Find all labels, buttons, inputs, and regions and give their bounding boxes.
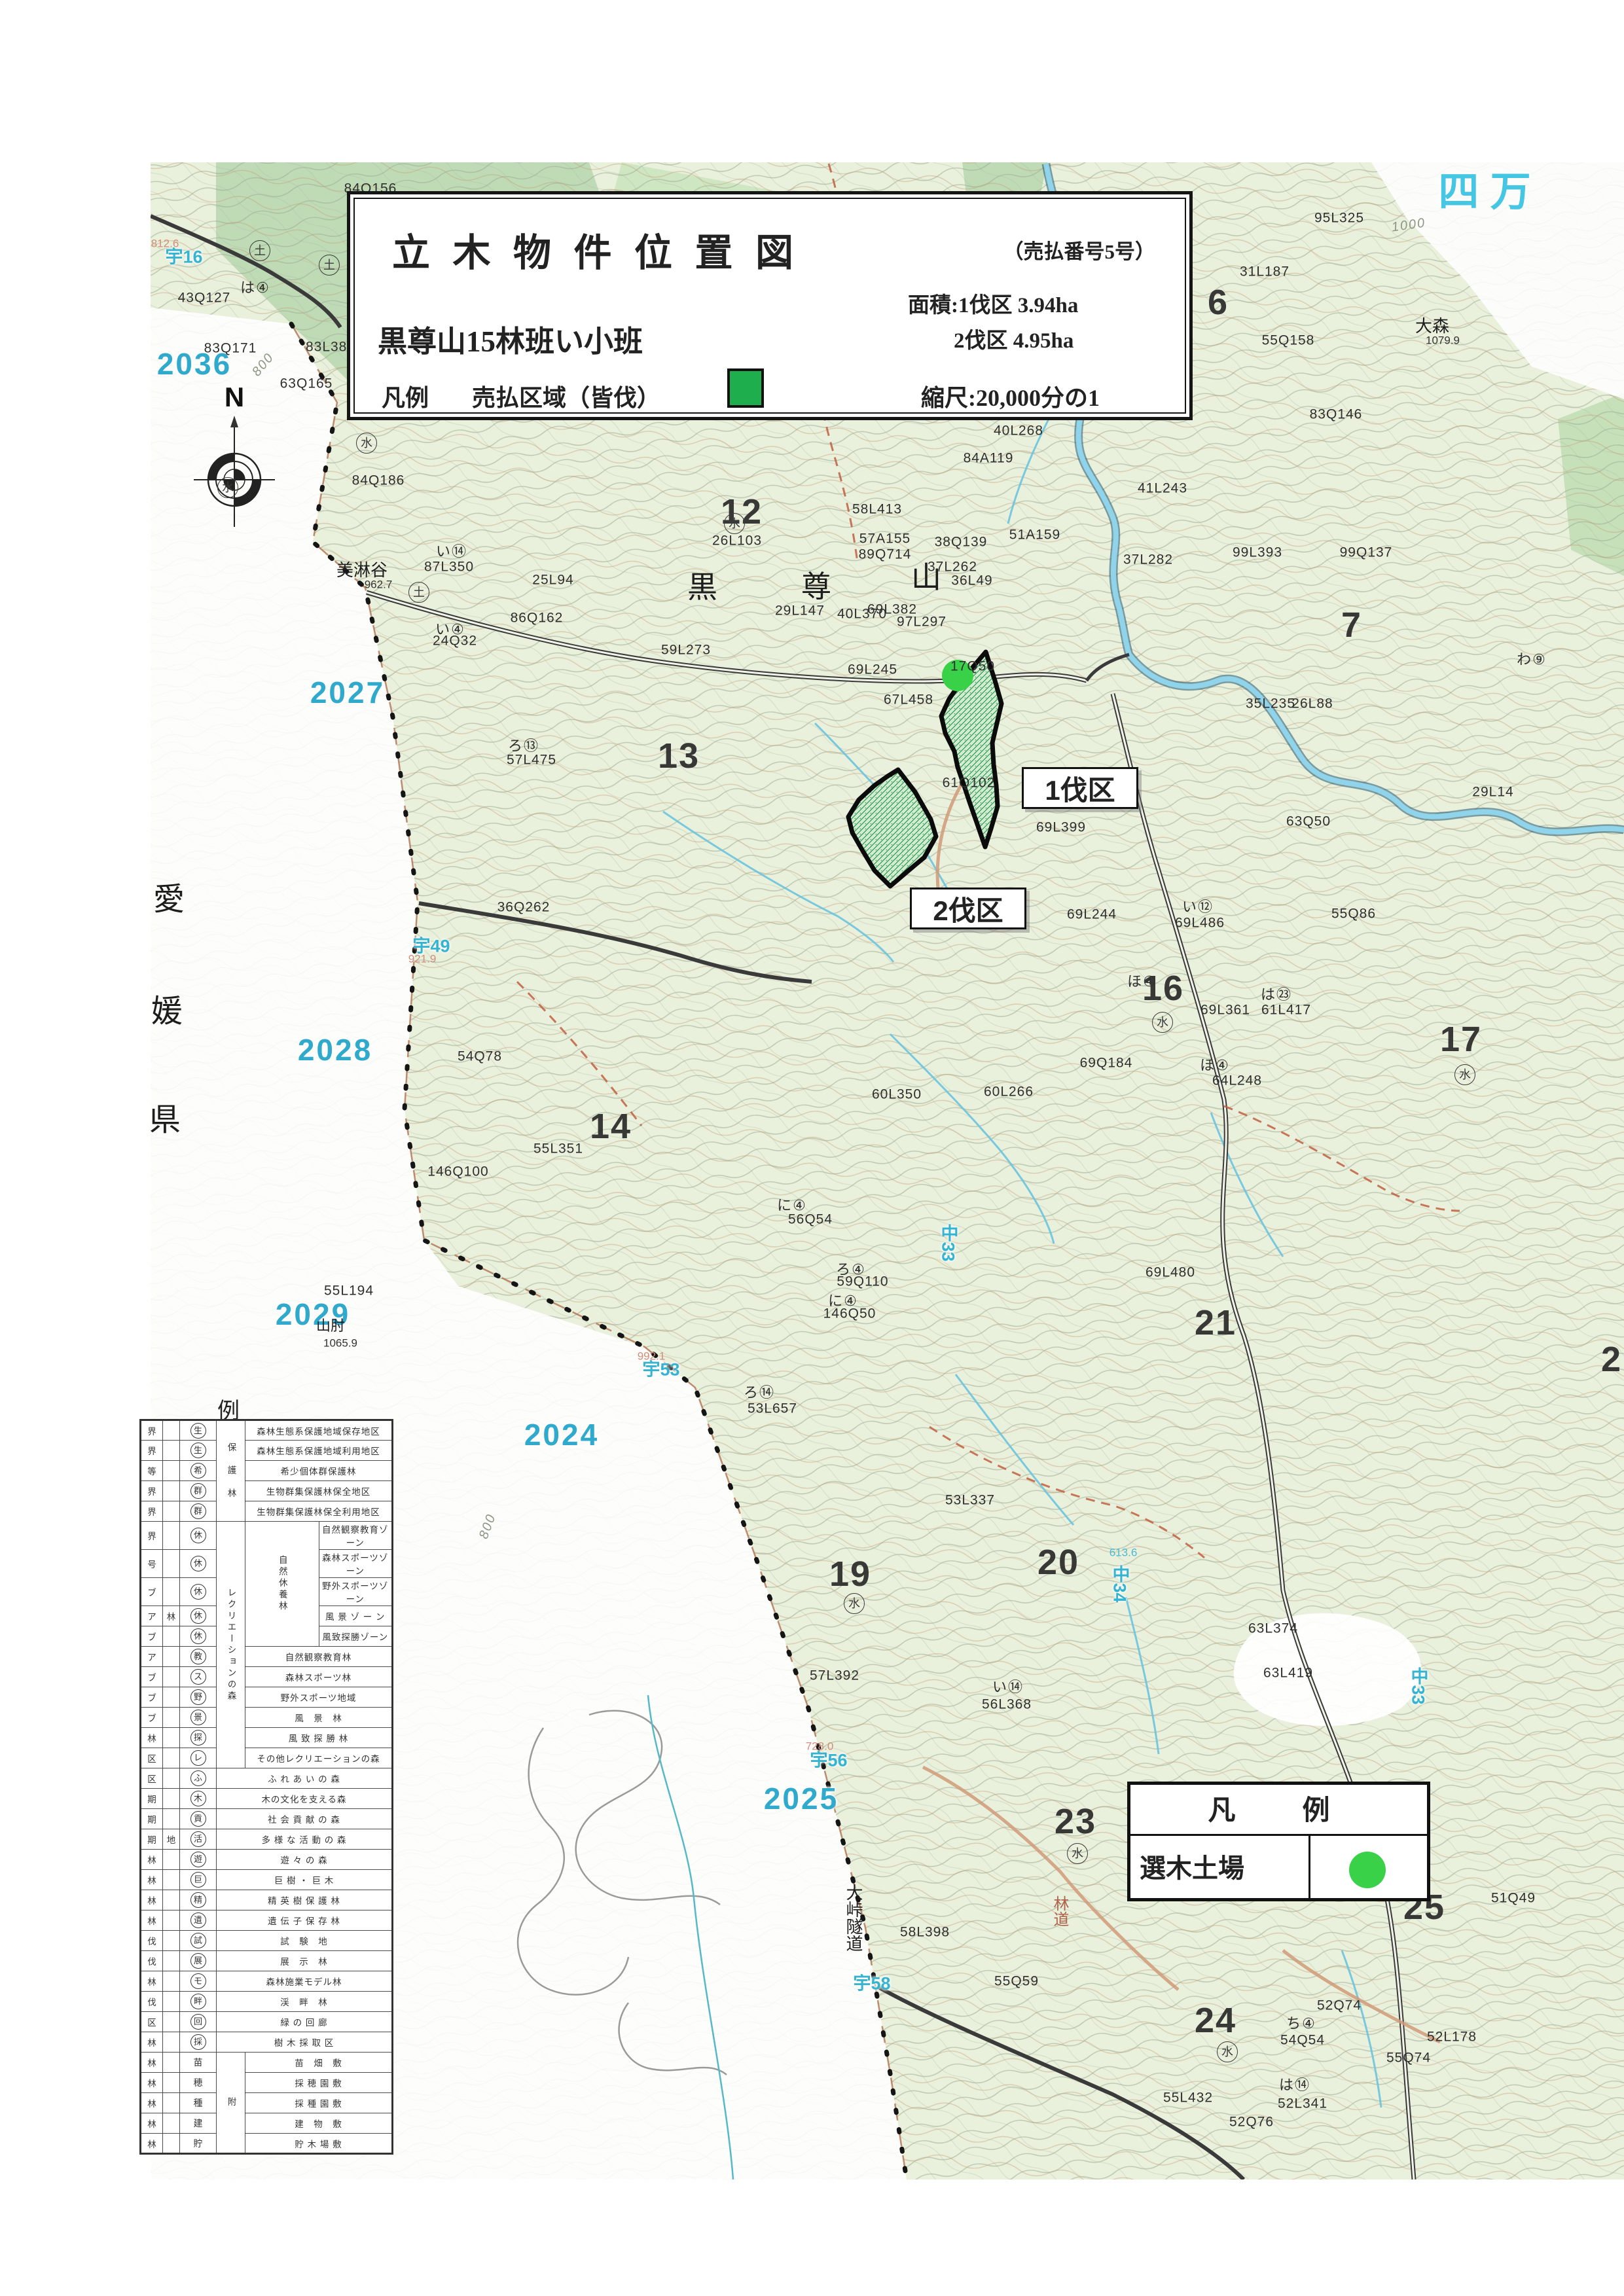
legend-row: 界生保 護 林森林生態系保護地域保存地区 (141, 1420, 393, 1441)
legend-cell-sym: 生 (180, 1441, 217, 1461)
legend-cell-strip: 林 (141, 2053, 163, 2073)
legend-cell-group (163, 1550, 180, 1578)
legend-row: 界群生物群集保護林保全地区 (141, 1481, 393, 1501)
area-line-2: 2伐区 4.95ha (954, 323, 1074, 354)
legend-cell-strip: ブ (141, 1687, 163, 1708)
legend-row: 等希希少個体群保護林 (141, 1461, 393, 1481)
legend-cell-strip: 林 (141, 1971, 163, 1992)
legend-cell-sym: 貢 (180, 1809, 217, 1829)
legend-cell-strip: 伐 (141, 1951, 163, 1971)
legend-circle-symbol: 休 (190, 1556, 206, 1571)
legend-cell-group (163, 1501, 180, 1522)
legend-cell-sym: 休 (180, 1606, 217, 1626)
page-title: 立 木 物 件 位 置 図 (392, 222, 800, 277)
legend-cell-group (163, 1931, 180, 1951)
legend-cell-group (163, 2053, 180, 2073)
legend-cell-name: 精 英 樹 保 護 林 (217, 1890, 393, 1910)
legend-cell-sym: レ (180, 1748, 217, 1768)
corner-legend-header: 凡 例 (1130, 1785, 1427, 1836)
legend-row: 期貢社 会 貢 献 の 森 (141, 1809, 393, 1829)
legend-cell-strip: 界 (141, 1420, 163, 1441)
legend-plain-symbol: 種 (194, 2096, 203, 2109)
corner-legend-box: 凡 例 選木土場 (1127, 1782, 1430, 1901)
legend-cell-group (163, 1971, 180, 1992)
legend-cell-group (163, 1687, 180, 1708)
legend-cell-strip: 林 (141, 1870, 163, 1890)
legend-cell-name: 採 種 園 敷 (245, 2093, 393, 2113)
legend-cell-group: 林 (163, 1606, 180, 1626)
legend-cell-name: 自然観察教育ゾーン (319, 1522, 393, 1550)
legend-item-label: 売払区域（皆伐） (472, 379, 660, 413)
legend-cell-sym: 休 (180, 1550, 217, 1578)
legend-circle-symbol: 畔 (190, 1994, 206, 2009)
legend-cell-strip: 林 (141, 2093, 163, 2113)
legend-cell-group (163, 2032, 180, 2053)
legend-cell-cat: 附 (217, 2053, 245, 2154)
legend-cell-group: 地 (163, 1829, 180, 1850)
legend-cell-strip: 林 (141, 1850, 163, 1870)
legend-row: 界生森林生態系保護地域利用地区 (141, 1441, 393, 1461)
legend-circle-symbol: 遺 (190, 1912, 206, 1928)
legend-cell-group (163, 1481, 180, 1501)
legend-cell-strip: 区 (141, 1768, 163, 1789)
cut-area-1-callout: 1伐区 (1022, 767, 1138, 809)
nonforest-pocket (1234, 1613, 1421, 1726)
legend-cell-sym: 休 (180, 1626, 217, 1647)
legend-cell-name: 渓 畔 林 (217, 1992, 393, 2012)
legend-row: 林建建 物 敷 (141, 2113, 393, 2134)
legend-cell-name: 展 示 林 (217, 1951, 393, 1971)
legend-cell-sym: 精 (180, 1890, 217, 1910)
legend-cell-name: ふ れ あ い の 森 (217, 1768, 393, 1789)
legend-cell-name: 森林生態系保護地域保存地区 (245, 1420, 393, 1441)
legend-circle-symbol: 群 (190, 1503, 206, 1519)
legend-row: 区回緑 の 回 廊 (141, 2012, 393, 2032)
legend-plain-symbol: 苗 (194, 2056, 203, 2069)
legend-circle-symbol: 遊 (190, 1852, 206, 1867)
legend-cell-name: 希少個体群保護林 (245, 1461, 393, 1481)
legend-cell-sym: 生 (180, 1420, 217, 1441)
sale-number: （売払番号5号） (1003, 235, 1156, 264)
legend-cell-strip: 界 (141, 1481, 163, 1501)
legend-cell-group (163, 1626, 180, 1647)
legend-cell-sym: 遺 (180, 1910, 217, 1931)
legend-cell-name: 苗 畑 敷 (245, 2053, 393, 2073)
legend-cell-group (163, 1992, 180, 2012)
legend-cell-group (163, 1461, 180, 1481)
legend-circle-symbol: ス (190, 1669, 206, 1685)
legend-cell-name: 建 物 敷 (245, 2113, 393, 2134)
area-line-1: 面積:1伐区 3.94ha (908, 287, 1078, 319)
legend-cell-sym: 野 (180, 1687, 217, 1708)
legend-cell-strip: 林 (141, 1890, 163, 1910)
legend-cell-sym: 巨 (180, 1870, 217, 1890)
legend-cell-name: 樹 木 採 取 区 (217, 2032, 393, 2053)
legend-cell-name: 風 景 林 (245, 1708, 393, 1728)
legend-row: 区レその他レクリエーションの森 (141, 1748, 393, 1768)
legend-label: 凡例 (382, 379, 429, 413)
legend-cell-sym: 遊 (180, 1850, 217, 1870)
legend-row: 林精精 英 樹 保 護 林 (141, 1890, 393, 1910)
legend-cell-sym: 貯 (180, 2134, 217, 2154)
legend-row: 林探風 致 探 勝 林 (141, 1728, 393, 1748)
legend-cell-sym: 教 (180, 1647, 217, 1667)
legend-cell-group (163, 1870, 180, 1890)
legend-row: 伐試試 験 地 (141, 1931, 393, 1951)
legend-row: ブ野野外スポーツ地域 (141, 1687, 393, 1708)
legend-cell-cat: 保 護 林 (217, 1420, 245, 1522)
legend-circle-symbol: ふ (190, 1770, 206, 1786)
legend-cell-name: 森林生態系保護地域利用地区 (245, 1441, 393, 1461)
legend-row: 林貯貯 木 場 敷 (141, 2134, 393, 2154)
legend-cell-name: 自然観察教育林 (245, 1647, 393, 1667)
legend-circle-symbol: 休 (190, 1628, 206, 1644)
legend-cell-name: 野外スポーツ地域 (245, 1687, 393, 1708)
legend-row: 林種採 種 園 敷 (141, 2093, 393, 2113)
legend-cell-strip: ア (141, 1606, 163, 1626)
legend-cell-sym: 畔 (180, 1992, 217, 2012)
legend-plain-symbol: 建 (194, 2117, 203, 2130)
legend-cell-strip: 伐 (141, 1931, 163, 1951)
legend-row: 林採樹 木 採 取 区 (141, 2032, 393, 2053)
legend-cell-strip: 界 (141, 1501, 163, 1522)
legend-plain-symbol: 貯 (194, 2137, 203, 2150)
legend-cell-strip: 号 (141, 1550, 163, 1578)
legend-circle-symbol: 休 (190, 1584, 206, 1600)
legend-row: 林遺遺 伝 子 保 存 林 (141, 1910, 393, 1931)
legend-cell-strip: 区 (141, 1748, 163, 1768)
stand-name-subtitle: 黒尊山15林班い小班 (378, 317, 643, 360)
legend-cell-name: 森林スポーツゾーン (319, 1550, 393, 1578)
legend-cell-sym: 木 (180, 1789, 217, 1809)
legend-row: 界休レクリエーションの森自然休養林自然観察教育ゾーン (141, 1522, 393, 1550)
legend-cell-strip: 伐 (141, 1992, 163, 2012)
legend-cell-group (163, 1420, 180, 1441)
legend-circle-symbol: レ (190, 1750, 206, 1766)
legend-cell-name: 巨 樹 ・ 巨 木 (217, 1870, 393, 1890)
legend-row: 期地活多 様 な 活 動 の 森 (141, 1829, 393, 1850)
legend-cell-group (163, 1850, 180, 1870)
legend-row: ブ景風 景 林 (141, 1708, 393, 1728)
legend-cell-sym: 採 (180, 2032, 217, 2053)
legend-cell-strip: 期 (141, 1789, 163, 1809)
legend-cell-group (163, 1708, 180, 1728)
legend-cell-sym: 活 (180, 1829, 217, 1850)
legend-cell-name: 採 穂 園 敷 (245, 2073, 393, 2093)
legend-cell-group (163, 2113, 180, 2134)
legend-circle-symbol: 群 (190, 1483, 206, 1499)
legend-cell-name: 木の文化を支える森 (217, 1789, 393, 1809)
legend-cell-sym: 種 (180, 2093, 217, 2113)
legend-circle-symbol: 活 (190, 1831, 206, 1847)
legend-cell-sym: 希 (180, 1461, 217, 1481)
legend-circle-symbol: 休 (190, 1608, 206, 1624)
legend-circle-symbol: 探 (190, 1730, 206, 1746)
legend-cell-strip: 林 (141, 1728, 163, 1748)
legend-cell-group (163, 1647, 180, 1667)
legend-row: 界群生物群集保護林保全利用地区 (141, 1501, 393, 1522)
legend-circle-symbol: 希 (190, 1463, 206, 1479)
legend-cell-strip: 区 (141, 2012, 163, 2032)
legend-cell-name: 遺 伝 子 保 存 林 (217, 1910, 393, 1931)
legend-cell-name: 貯 木 場 敷 (245, 2134, 393, 2154)
legend-cell-group (163, 1667, 180, 1687)
legend-circle-symbol: 木 (190, 1791, 206, 1806)
legend-row: 伐展展 示 林 (141, 1951, 393, 1971)
legend-cell-sym: 展 (180, 1951, 217, 1971)
legend-cell-strip: ブ (141, 1708, 163, 1728)
legend-cell-strip: 林 (141, 2032, 163, 2053)
legend-cell-strip: 林 (141, 2073, 163, 2093)
legend-cell-sym: ス (180, 1667, 217, 1687)
legend-circle-symbol: 生 (190, 1423, 206, 1439)
legend-cell-group (163, 2073, 180, 2093)
legend-cell-strip: ブ (141, 1578, 163, 1606)
legend-cell-strip: 界 (141, 1441, 163, 1461)
legend-row: 林穂採 穂 園 敷 (141, 2073, 393, 2093)
legend-cell-strip: 期 (141, 1829, 163, 1850)
legend-cell-sym: 探 (180, 1728, 217, 1748)
timber-yard-marker (942, 660, 973, 691)
legend-cell-group (163, 2012, 180, 2032)
legend-cell-group (163, 1768, 180, 1789)
legend-circle-symbol: 生 (190, 1443, 206, 1458)
legend-cell-group (163, 1951, 180, 1971)
legend-row: 林巨巨 樹 ・ 巨 木 (141, 1870, 393, 1890)
legend-cell-cat: レクリエーションの森 (217, 1522, 245, 1768)
legend-cell-group (163, 1748, 180, 1768)
legend-cell-name: 風 景 ゾ ー ン (319, 1606, 393, 1626)
legend-cell-name: 風 致 探 勝 林 (245, 1728, 393, 1748)
legend-circle-symbol: 試 (190, 1933, 206, 1948)
legend-cell-group (163, 2093, 180, 2113)
legend-cell-sym: 試 (180, 1931, 217, 1951)
timber-yard-dot (1349, 1852, 1386, 1888)
legend-cell-group (163, 2134, 180, 2154)
legend-cell-sym: 休 (180, 1578, 217, 1606)
legend-cell-sym: ふ (180, 1768, 217, 1789)
legend-cell-strip: 林 (141, 1910, 163, 1931)
timber-yard-label: 選木土場 (1140, 1845, 1244, 1892)
corner-legend-divider (1308, 1836, 1310, 1898)
legend-cell-group (163, 1578, 180, 1606)
legend-cell-strip: 期 (141, 1809, 163, 1829)
scale-label: 縮尺:20,000分の1 (921, 379, 1100, 413)
legend-cell-group (163, 1728, 180, 1748)
legend-cell-group (163, 1809, 180, 1829)
legend-cell-name: 社 会 貢 献 の 森 (217, 1809, 393, 1829)
legend-circle-symbol: 景 (190, 1710, 206, 1725)
legend-circle-symbol: 休 (190, 1528, 206, 1543)
legend-circle-symbol: 精 (190, 1892, 206, 1908)
legend-table: 界生保 護 林森林生態系保護地域保存地区界生森林生態系保護地域利用地区等希希少個… (139, 1419, 393, 2155)
legend-cell-name: 風致探勝ゾーン (319, 1626, 393, 1647)
legend-row: ブス森林スポーツ林 (141, 1667, 393, 1687)
legend-cell-strip: 林 (141, 2113, 163, 2134)
legend-row: 林モ森林施業モデル林 (141, 1971, 393, 1992)
legend-row: ア教自然観察教育林 (141, 1647, 393, 1667)
legend-cell-strip: 等 (141, 1461, 163, 1481)
legend-cell-sym: 群 (180, 1481, 217, 1501)
legend-circle-symbol: 回 (190, 2014, 206, 2030)
legend-cell-sym: 休 (180, 1522, 217, 1550)
legend-cell-name: 緑 の 回 廊 (217, 2012, 393, 2032)
legend-cell-sym: 穂 (180, 2073, 217, 2093)
legend-cell-sym: 建 (180, 2113, 217, 2134)
legend-cell-group (163, 1522, 180, 1550)
legend-cell-name: その他レクリエーションの森 (245, 1748, 393, 1768)
title-box: 立 木 物 件 位 置 図 （売払番号5号） 黒尊山15林班い小班 面積:1伐区… (347, 191, 1193, 420)
sale-area-swatch (727, 368, 764, 408)
legend-plain-symbol: 穂 (194, 2076, 203, 2089)
legend-circle-symbol: 貢 (190, 1811, 206, 1827)
legend-row: 伐畔渓 畔 林 (141, 1992, 393, 2012)
legend-row: 林苗附苗 畑 敷 (141, 2053, 393, 2073)
legend-cell-group (163, 1910, 180, 1931)
legend-cell-name: 森林スポーツ林 (245, 1667, 393, 1687)
legend-cell-sym: 景 (180, 1708, 217, 1728)
legend-cell-strip: ブ (141, 1667, 163, 1687)
legend-cell-sym: 群 (180, 1501, 217, 1522)
legend-circle-symbol: モ (190, 1973, 206, 1989)
legend-cell-group (163, 1890, 180, 1910)
legend-cell-name: 生物群集保護林保全利用地区 (245, 1501, 393, 1522)
legend-cell-name: 森林施業モデル林 (217, 1971, 393, 1992)
legend-row: 期木木の文化を支える森 (141, 1789, 393, 1809)
legend-circle-symbol: 展 (190, 1953, 206, 1969)
legend-cell-sym: 苗 (180, 2053, 217, 2073)
legend-circle-symbol: 採 (190, 2034, 206, 2050)
legend-cell-group (163, 1789, 180, 1809)
legend-row: 区ふふ れ あ い の 森 (141, 1768, 393, 1789)
legend-cell-group (163, 1441, 180, 1461)
legend-cell-strip: 界 (141, 1522, 163, 1550)
legend-circle-symbol: 野 (190, 1689, 206, 1705)
legend-cell-name: 試 験 地 (217, 1931, 393, 1951)
legend-cell-sym: モ (180, 1971, 217, 1992)
legend-circle-symbol: 教 (190, 1649, 206, 1664)
legend-circle-symbol: 巨 (190, 1872, 206, 1888)
legend-cell-name: 遊 々 の 森 (217, 1850, 393, 1870)
legend-row: 林遊遊 々 の 森 (141, 1850, 393, 1870)
legend-cell-strip: ア (141, 1647, 163, 1667)
compass-north-label: N (225, 382, 244, 412)
legend-cell-name: 多 様 な 活 動 の 森 (217, 1829, 393, 1850)
legend-cell-name: 野外スポーツゾーン (319, 1578, 393, 1606)
legend-cell-name: 生物群集保護林保全地区 (245, 1481, 393, 1501)
legend-cell-sym: 回 (180, 2012, 217, 2032)
legend-cell-strip: ブ (141, 1626, 163, 1647)
legend-cell-strip: 林 (141, 2134, 163, 2154)
cut-area-2-callout: 2伐区 (910, 888, 1026, 929)
legend-cell-cat2: 自然休養林 (245, 1522, 319, 1647)
